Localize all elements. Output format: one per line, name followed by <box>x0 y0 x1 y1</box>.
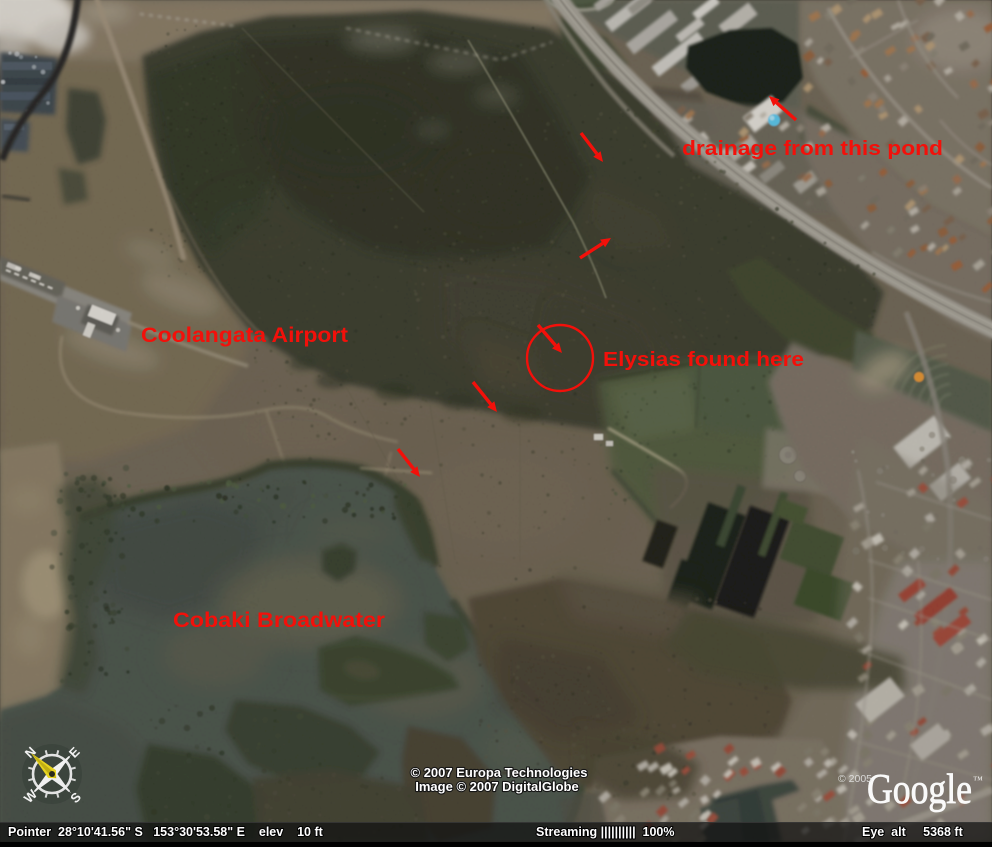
svg-text:Cobaki Broadwater: Cobaki Broadwater <box>173 609 385 632</box>
svg-text:Streaming |||||||||| 100%: Streaming |||||||||| 100% <box>536 825 675 839</box>
svg-text:Google: Google <box>867 767 972 813</box>
svg-text:© 2005: © 2005 <box>838 773 872 785</box>
svg-text:™: ™ <box>973 775 983 786</box>
svg-text:Elysias found here: Elysias found here <box>603 349 804 371</box>
svg-text:Image © 2007 DigitalGlobe: Image © 2007 DigitalGlobe <box>415 779 578 794</box>
svg-text:Coolangata Airport: Coolangata Airport <box>141 324 348 347</box>
svg-text:Eye alt 5368 ft: Eye alt 5368 ft <box>862 825 964 839</box>
svg-text:drainage from this pond: drainage from this pond <box>682 138 943 160</box>
svg-text:© 2007 Europa Technologies: © 2007 Europa Technologies <box>411 765 588 780</box>
svg-text:Pointer 28°10'41.56" S 153°: Pointer 28°10'41.56" S 153°30'53.58" E e… <box>8 825 324 839</box>
